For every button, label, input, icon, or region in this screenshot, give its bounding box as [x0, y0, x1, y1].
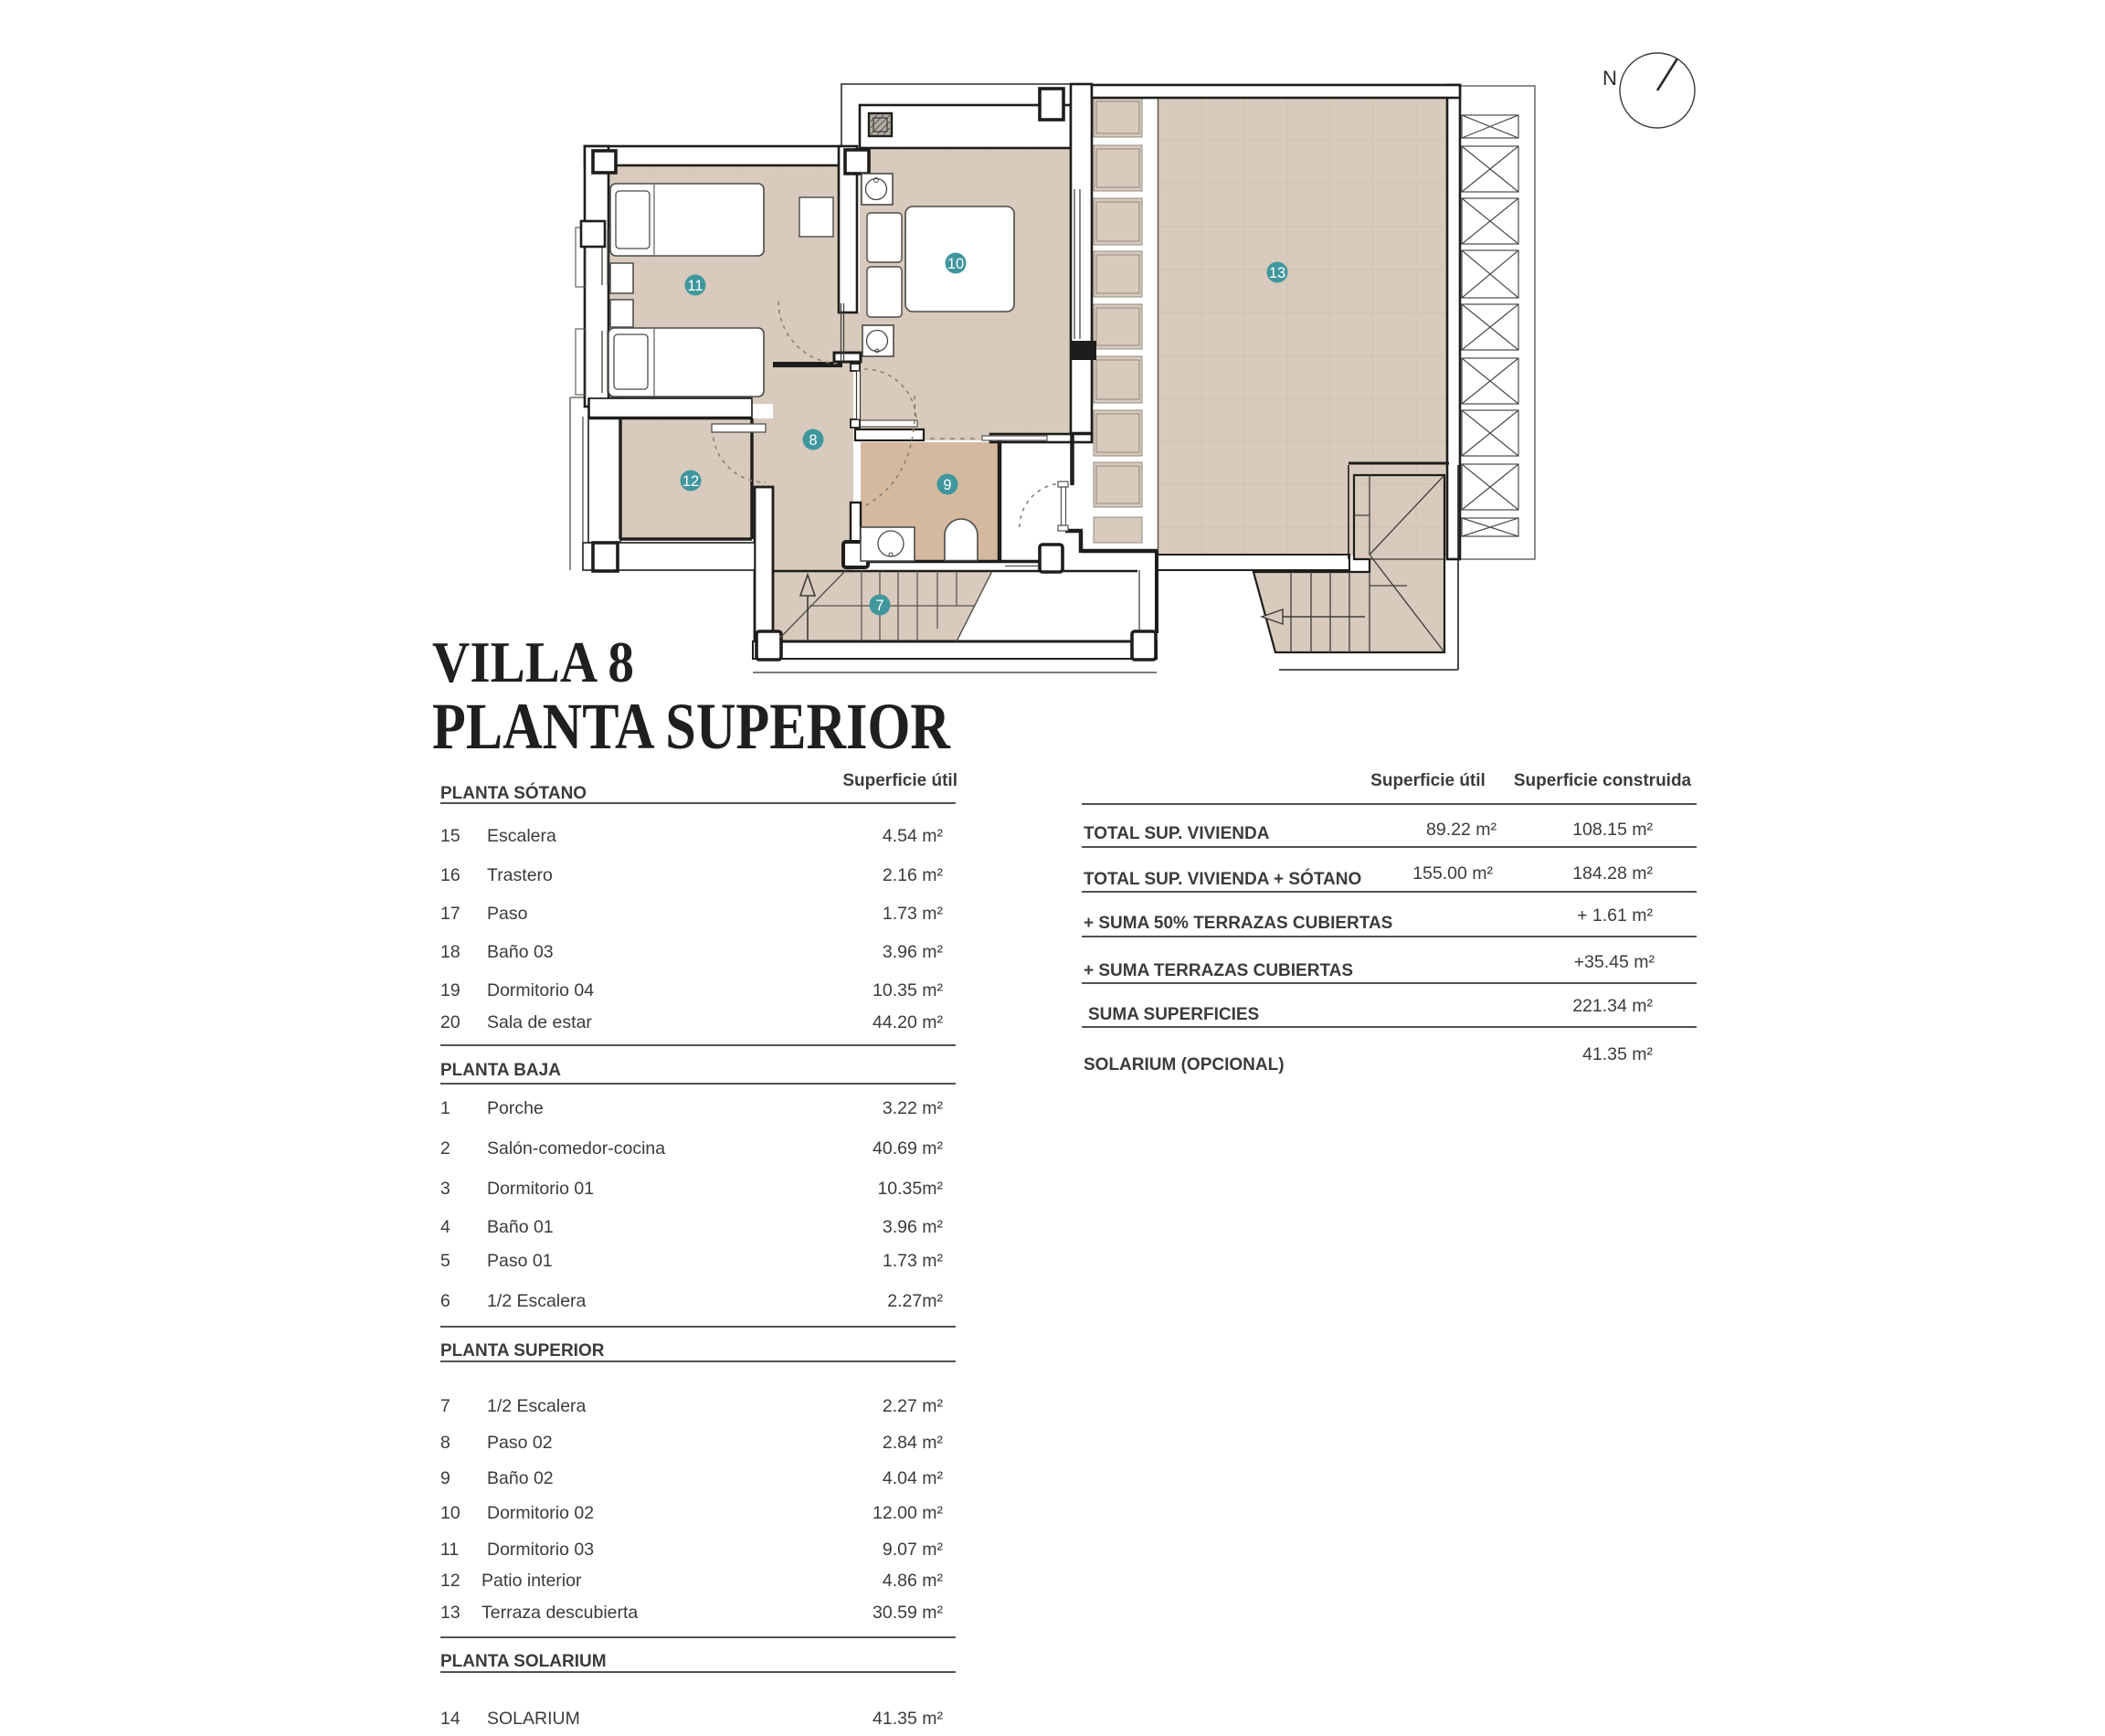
svg-text:Dormitorio 04: Dormitorio 04: [487, 980, 594, 1000]
svg-text:+ SUMA 50% TERRAZAS CUBIERTAS: + SUMA 50% TERRAZAS CUBIERTAS: [1084, 914, 1392, 933]
svg-text:8: 8: [809, 432, 817, 449]
svg-text:40.69 m²: 40.69 m²: [873, 1138, 943, 1159]
svg-text:3.96 m²: 3.96 m²: [883, 942, 944, 962]
svg-text:2.16 m²: 2.16 m²: [883, 865, 944, 885]
svg-text:20: 20: [440, 1012, 460, 1032]
svg-text:Superficie útil: Superficie útil: [842, 771, 957, 790]
svg-text:6: 6: [440, 1291, 450, 1311]
svg-text:13: 13: [440, 1603, 460, 1623]
svg-text:108.15 m²: 108.15 m²: [1572, 820, 1653, 840]
svg-text:VILLA 8: VILLA 8: [432, 630, 634, 694]
svg-text:9: 9: [943, 477, 951, 493]
svg-text:1/2 Escalera: 1/2 Escalera: [487, 1396, 587, 1416]
svg-text:18: 18: [440, 942, 460, 962]
svg-text:Dormitorio 01: Dormitorio 01: [487, 1179, 594, 1199]
svg-text:+ SUMA TERRAZAS CUBIERTAS: + SUMA TERRAZAS CUBIERTAS: [1084, 961, 1353, 980]
svg-text:PLANTA SÓTANO: PLANTA SÓTANO: [440, 783, 587, 803]
svg-text:PLANTA BAJA: PLANTA BAJA: [440, 1061, 561, 1080]
svg-text:1: 1: [440, 1098, 450, 1118]
svg-text:Porche: Porche: [487, 1098, 544, 1118]
svg-text:19: 19: [440, 980, 460, 1000]
svg-text:7: 7: [875, 598, 883, 614]
svg-text:184.28 m²: 184.28 m²: [1572, 863, 1653, 884]
svg-text:+ 1.61 m²: + 1.61 m²: [1577, 905, 1653, 926]
svg-text:Superficie útil: Superficie útil: [1370, 771, 1486, 790]
svg-text:8: 8: [440, 1433, 450, 1453]
svg-text:9.07 m²: 9.07 m²: [883, 1540, 944, 1560]
svg-text:12.00 m²: 12.00 m²: [873, 1503, 943, 1523]
svg-text:2: 2: [440, 1138, 450, 1159]
svg-text:16: 16: [440, 865, 460, 885]
svg-text:Superficie construida: Superficie construida: [1514, 771, 1692, 790]
svg-text:11: 11: [440, 1540, 459, 1560]
svg-text:SOLARIUM: SOLARIUM: [487, 1709, 580, 1729]
svg-text:1.73 m²: 1.73 m²: [883, 904, 944, 924]
svg-text:Terraza descubierta: Terraza descubierta: [481, 1603, 638, 1623]
svg-text:44.20 m²: 44.20 m²: [873, 1012, 943, 1032]
svg-text:30.59 m²: 30.59 m²: [873, 1603, 943, 1623]
svg-text:N: N: [1603, 67, 1617, 90]
svg-text:10.35 m²: 10.35 m²: [873, 980, 943, 1000]
svg-text:7: 7: [440, 1396, 450, 1416]
svg-text:Paso 01: Paso 01: [487, 1251, 553, 1271]
svg-text:221.34 m²: 221.34 m²: [1572, 996, 1653, 1016]
svg-text:3: 3: [440, 1179, 450, 1199]
svg-text:TOTAL SUP. VIVIENDA: TOTAL SUP. VIVIENDA: [1084, 824, 1270, 843]
svg-text:10: 10: [440, 1503, 460, 1523]
svg-text:Trastero: Trastero: [487, 865, 553, 885]
svg-text:12: 12: [682, 473, 699, 490]
svg-text:41.35 m²: 41.35 m²: [1582, 1044, 1653, 1064]
svg-text:PLANTA SUPERIOR: PLANTA SUPERIOR: [440, 1341, 605, 1360]
svg-text:14: 14: [440, 1709, 460, 1729]
svg-text:PLANTA SUPERIOR: PLANTA SUPERIOR: [432, 690, 951, 763]
svg-text:PLANTA SOLARIUM: PLANTA SOLARIUM: [440, 1652, 607, 1671]
svg-text:17: 17: [440, 904, 460, 924]
svg-text:Patio interior: Patio interior: [481, 1571, 582, 1591]
svg-text:13: 13: [1269, 265, 1285, 281]
svg-text:Baño 03: Baño 03: [487, 942, 554, 962]
svg-text:TOTAL SUP. VIVIENDA + SÓTANO: TOTAL SUP. VIVIENDA + SÓTANO: [1084, 869, 1361, 889]
svg-text:10.35m²: 10.35m²: [877, 1179, 943, 1199]
svg-text:Escalera: Escalera: [487, 826, 556, 846]
svg-text:Salón-comedor-cocina: Salón-comedor-cocina: [487, 1138, 665, 1159]
svg-text:Paso 02: Paso 02: [487, 1433, 553, 1453]
svg-text:Baño 02: Baño 02: [487, 1468, 554, 1488]
svg-text:SUMA SUPERFICIES: SUMA SUPERFICIES: [1088, 1005, 1259, 1024]
svg-text:4: 4: [440, 1217, 450, 1237]
svg-text:12: 12: [440, 1571, 460, 1591]
svg-text:Dormitorio 02: Dormitorio 02: [487, 1503, 594, 1523]
svg-text:3.96 m²: 3.96 m²: [883, 1217, 944, 1237]
svg-text:41.35 m²: 41.35 m²: [873, 1709, 943, 1729]
svg-text:9: 9: [440, 1468, 450, 1488]
svg-text:89.22 m²: 89.22 m²: [1426, 820, 1497, 840]
svg-text:Baño 01: Baño 01: [487, 1217, 554, 1237]
svg-text:1/2 Escalera: 1/2 Escalera: [487, 1291, 587, 1311]
svg-text:155.00 m²: 155.00 m²: [1412, 863, 1493, 884]
svg-text:3.22 m²: 3.22 m²: [883, 1098, 944, 1118]
svg-text:5: 5: [440, 1251, 450, 1271]
svg-text:15: 15: [440, 826, 460, 846]
svg-text:4.04 m²: 4.04 m²: [883, 1468, 944, 1488]
svg-text:Paso: Paso: [487, 904, 528, 924]
svg-text:4.54 m²: 4.54 m²: [883, 826, 944, 846]
svg-text:Sala de estar: Sala de estar: [487, 1012, 592, 1032]
svg-text:2.27 m²: 2.27 m²: [883, 1396, 944, 1416]
svg-text:SOLARIUM (OPCIONAL): SOLARIUM (OPCIONAL): [1084, 1055, 1285, 1074]
svg-text:Dormitorio 03: Dormitorio 03: [487, 1540, 594, 1560]
svg-text:10: 10: [947, 256, 964, 272]
svg-text:11: 11: [687, 278, 703, 294]
svg-text:4.86 m²: 4.86 m²: [883, 1571, 944, 1591]
svg-text:2.27m²: 2.27m²: [887, 1291, 943, 1311]
svg-text:1.73 m²: 1.73 m²: [883, 1251, 944, 1271]
svg-text:+35.45 m²: +35.45 m²: [1574, 952, 1655, 972]
svg-text:2.84 m²: 2.84 m²: [883, 1433, 944, 1453]
